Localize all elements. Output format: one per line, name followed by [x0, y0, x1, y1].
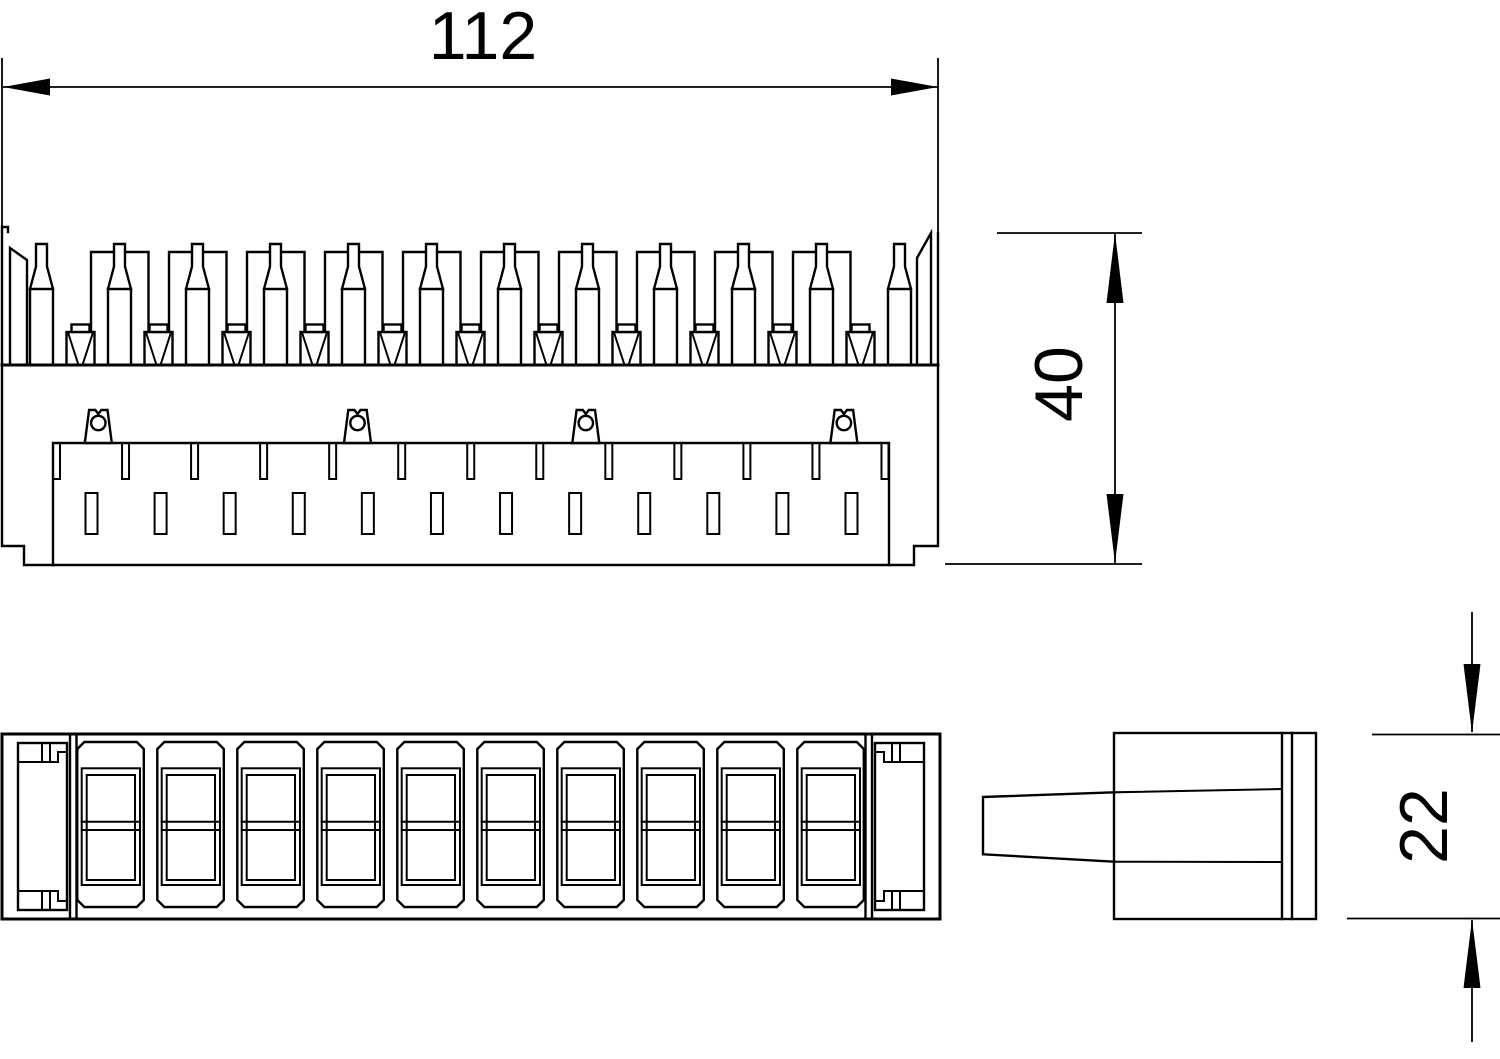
wire-guide-funnel: [769, 325, 797, 366]
mid-slot: [155, 493, 167, 534]
terminal-module: [397, 742, 464, 907]
left-wall-piece: [10, 248, 27, 365]
mid-slot: [776, 493, 788, 534]
side-tongue-inner: [1114, 789, 1282, 862]
mid-slot: [638, 493, 650, 534]
plan-left-divider: [70, 734, 77, 919]
front-outline: [2, 227, 938, 565]
plan-left-cap-detail: [18, 743, 67, 910]
height-dim-label: 40: [1021, 346, 1097, 422]
mid-slot: [431, 493, 443, 534]
top-slot: [605, 443, 612, 479]
wire-guide-funnel: [613, 325, 641, 366]
wire-guide-funnel: [223, 325, 251, 366]
top-slot: [329, 443, 336, 479]
top-slot: [674, 443, 681, 479]
contact-pin: [654, 244, 677, 365]
plan-right-divider: [866, 734, 873, 919]
plan-view: [2, 734, 940, 919]
contact-pin: [732, 244, 755, 365]
modules: [77, 742, 864, 907]
retaining-clip: [830, 410, 857, 443]
width-arrow-right: [891, 79, 938, 96]
top-slot: [398, 443, 405, 479]
clips: [85, 410, 858, 443]
terminal-module: [557, 742, 624, 907]
contact-pin: [342, 244, 365, 365]
terminal-module: [237, 742, 303, 907]
mid-slot: [500, 493, 512, 534]
depth-arrow-top: [1464, 664, 1481, 733]
contact-pin: [186, 244, 209, 365]
wire-guide-funnel: [691, 325, 719, 366]
side-view: [983, 733, 1316, 919]
mid-slot: [362, 493, 374, 534]
height-arrow-top: [1107, 233, 1124, 303]
retaining-clip: [572, 410, 599, 443]
mid-slot: [845, 493, 857, 534]
mid-slots: [86, 493, 858, 534]
terminal-module: [77, 742, 144, 907]
side-inner-lines: [1282, 733, 1292, 919]
mid-slot: [293, 493, 305, 534]
mid-slot: [224, 493, 236, 534]
lower-body: [53, 443, 889, 565]
terminal-module: [797, 742, 864, 907]
plan-right-cap-detail: [875, 743, 924, 910]
retaining-clip: [85, 410, 112, 443]
terminal-module: [317, 742, 384, 907]
width-extension-lines: [2, 58, 938, 232]
front-view: [2, 227, 938, 565]
retaining-clip: [344, 410, 371, 443]
side-body: [1114, 733, 1316, 919]
mid-slot: [569, 493, 581, 534]
top-slot: [536, 443, 543, 479]
terminal-module: [717, 742, 784, 907]
top-slots: [53, 443, 888, 479]
contact-pin: [576, 244, 599, 365]
contact-pin: [264, 244, 287, 365]
plan-right-cap: [875, 743, 924, 910]
plan-left-cap: [18, 743, 67, 910]
terminal-module: [157, 742, 224, 907]
depth-dim-label: 22: [1386, 788, 1462, 864]
contact-pin: [108, 244, 131, 365]
drawing-canvas: 112 40 22: [0, 0, 1500, 1059]
mid-slot: [707, 493, 719, 534]
height-arrow-bottom: [1107, 494, 1124, 563]
top-slot: [260, 443, 267, 479]
dimension-depth: 22: [1347, 612, 1500, 1042]
contact-pin: [888, 244, 911, 365]
dimension-width: 112: [2, 0, 938, 232]
wire-guide-funnel: [145, 325, 173, 366]
wire-guide-funnel: [379, 325, 407, 366]
top-slot: [122, 443, 129, 479]
contact-pin: [30, 244, 53, 365]
top-slot: [881, 443, 888, 479]
top-slot: [743, 443, 750, 479]
contact-pin: [810, 244, 833, 365]
wire-guide-funnel: [457, 325, 485, 366]
wire-guide-funnel: [535, 325, 563, 366]
right-wall-piece: [917, 233, 931, 365]
contact-pin: [420, 244, 443, 365]
terminal-module: [477, 742, 544, 907]
terminal-module: [637, 742, 704, 907]
depth-arrow-bottom: [1464, 919, 1481, 988]
mid-slot: [86, 493, 98, 534]
contact-pin: [498, 244, 521, 365]
wire-guide-funnel: [847, 325, 875, 366]
top-slot: [812, 443, 819, 479]
dimension-height: 40: [945, 233, 1142, 564]
width-arrow-left: [3, 79, 50, 96]
technical-drawing: 112 40 22: [0, 0, 1500, 1059]
top-slot: [467, 443, 474, 479]
wire-guide-funnel: [301, 325, 329, 366]
side-tongue: [983, 792, 1114, 861]
wire-guide-funnel: [67, 325, 95, 366]
top-slot: [191, 443, 198, 479]
width-dim-label: 112: [429, 0, 537, 74]
